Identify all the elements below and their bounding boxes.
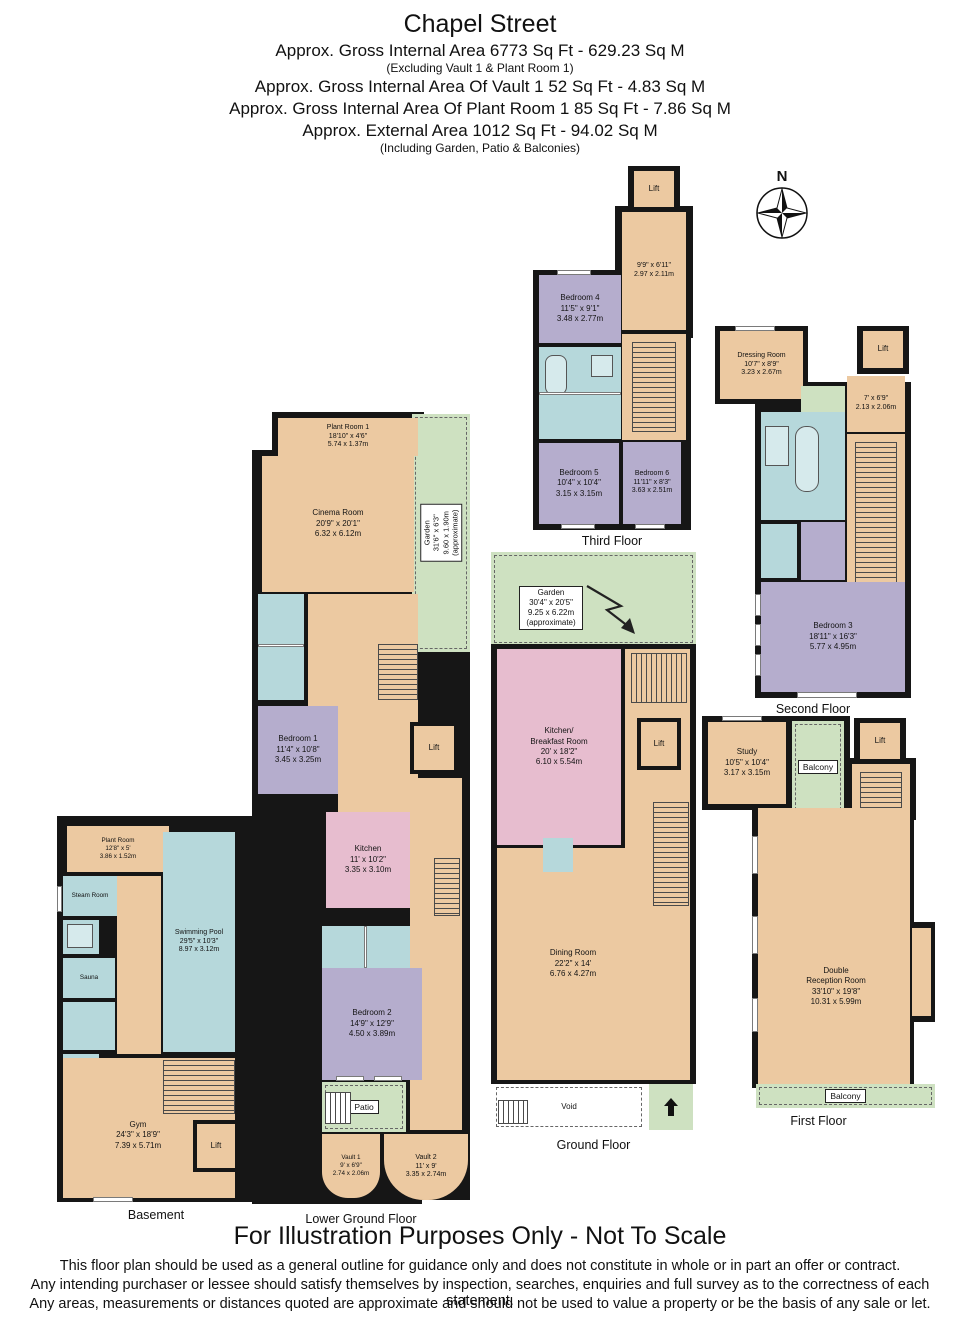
room-hall: 9'9" x 6'11" 2.97 x 2.11m [622,212,686,330]
room-dims-m: 5.77 x 4.95m [809,642,857,652]
staircase [631,653,687,703]
room-dims-ft: 10'5" x 10'4" [724,758,770,768]
floorplan-page: Chapel Street Approx. Gross Internal Are… [0,0,960,1328]
room-wc [63,1002,115,1050]
room-label: Kitchen 11' x 10'2" 3.35 x 3.10m [345,844,391,875]
balcony-tag: Balcony [825,1089,865,1104]
staircase [434,858,460,916]
room-dims-ft: 14'9" x 12'9" [349,1019,395,1029]
room-kitchen-breakfast: Kitchen/ Breakfast Room 20' x 18'2" 6.10… [497,649,621,845]
page-title: Chapel Street [0,10,960,39]
room-bedroom-1: Bedroom 1 11'4" x 10'8" 3.45 x 3.25m [258,706,338,794]
room-name: Swimming Pool [175,929,223,938]
room-label: Vault 2 11' x 9' 3.35 x 2.74m [406,1154,446,1180]
garden-note: (approximate) [450,509,459,557]
room-label: Dressing Room 10'7" x 8'9" 3.23 x 2.67m [737,352,785,378]
garden-note: (approximate) [524,618,578,628]
room-lift: Lift [414,726,454,770]
bay-window-nook [912,928,931,1016]
ground-floor-plan: Garden 30'4" x 20'5" 9.25 x 6.22m (appro… [491,552,696,1134]
wall-divider [364,926,367,968]
room-plant-room: Plant Room 12'8" x 5' 3.86 x 1.52m [67,826,169,872]
patio-tag: Patio [349,1100,378,1115]
room-name: Bedroom 5 [556,468,602,478]
staircase [632,342,676,432]
illustration-notice: For Illustration Purposes Only - Not To … [0,1222,960,1251]
room-label: Cinema Room 20'9" x 20'1" 6.32 x 6.12m [312,508,363,539]
room-dims-ft: 33'10" x 19'8" [776,987,896,997]
room-label: Plant Room 12'8" x 5' 3.86 x 1.52m [100,837,136,861]
vault-area-line: Approx. Gross Internal Area Of Vault 1 5… [0,77,960,97]
room-dims-ft: 10'7" x 8'9" [737,361,785,370]
header: Chapel Street Approx. Gross Internal Are… [0,10,960,155]
bathtub-fixture [545,355,567,395]
staircase [163,1060,235,1114]
room-label: Study 10'5" x 10'4" 3.17 x 3.15m [724,747,770,778]
room-label: Kitchen/ Breakfast Room 20' x 18'2" 6.10… [530,726,587,768]
room-dims-ft: 11' x 10'2" [345,855,391,865]
basement-plan: Plant Room 12'8" x 5' 3.86 x 1.52m Steam… [57,816,255,1202]
window [557,270,591,275]
room-sauna: Sauna [63,958,115,998]
room-cinema: Cinema Room 20'9" x 20'1" 6.32 x 6.12m [262,456,414,592]
room-label: 9'9" x 6'11" 2.97 x 2.11m [634,262,674,280]
room-dims-ft: 10'4" x 10'4" [556,478,602,488]
room-dims-m: 10.31 x 5.99m [776,997,896,1007]
room-dims-m: 2.97 x 2.11m [634,271,674,280]
first-floor-plan: Study 10'5" x 10'4" 3.17 x 3.15m Balcony… [702,716,935,1108]
window [755,594,761,616]
second-floor-plan: Dressing Room 10'7" x 8'9" 3.23 x 2.67m … [715,326,911,698]
room-name: Study [724,747,770,757]
window [752,916,758,954]
room-name: Bedroom 3 [809,621,857,631]
room-dims-ft: 12'8" x 5' [100,845,136,853]
entrance-arrow-icon [664,1098,678,1116]
room-dims-m: 3.48 x 2.77m [557,314,603,324]
first-floor-label: First Floor [702,1114,935,1128]
room-dims-m: 7.39 x 5.71m [83,1141,193,1151]
compass: N [752,168,812,246]
room-label: Bedroom 4 11'5" x 9'1" 3.48 x 2.77m [557,293,603,324]
room-name-line2: Reception Room [776,976,896,986]
room-name: Vault 1 [333,1154,369,1162]
room-bedroom-5: Bedroom 5 10'4" x 10'4" 3.15 x 3.15m [539,443,619,524]
balcony-bottom: Balcony [756,1084,935,1108]
window [735,326,775,331]
garden-label-box: Garden 31'6" x 6'3" 9.60 x 1.90m (approx… [420,504,462,562]
room-name: Dining Room [550,948,596,958]
room-name: Lift [654,739,665,749]
room-name: Sauna [80,974,98,982]
window [336,1076,364,1081]
room-dims-ft: 18'10" x 4'6" [327,433,369,442]
compass-rose-icon [754,185,810,241]
room-wc [543,838,573,872]
external-area-note: (Including Garden, Patio & Balconies) [0,141,960,155]
window [755,624,761,646]
room-dims-ft: 18'11" x 16'3" [809,632,857,642]
shower-fixture [67,924,93,948]
room-name: Bedroom 6 [632,470,672,479]
room-hall: 7' x 6'9" 2.13 x 2.06m [847,376,905,432]
third-floor-plan: Lift 9'9" x 6'11" 2.97 x 2.11m Bedroom 4… [533,166,691,530]
patio-steps [325,1092,351,1124]
room-label: Bedroom 6 11'11" x 8'3" 3.63 x 2.51m [632,470,672,496]
garden-label-box: Garden 30'4" x 20'5" 9.25 x 6.22m (appro… [519,586,583,630]
third-floor-label: Third Floor [533,534,691,548]
room-dims-m: 3.17 x 3.15m [724,768,770,778]
room-name: Bedroom 2 [349,1008,395,1018]
room-dims-m: 3.35 x 2.74m [406,1171,446,1180]
room-label: Bedroom 5 10'4" x 10'4" 3.15 x 3.15m [556,468,602,499]
garden-dims-m: 9.60 x 1.90m [441,509,450,557]
room-label: Vault 1 9' x 6'9" 2.74 x 2.06m [333,1154,369,1178]
room-swimming-pool: Swimming Pool 29'5" x 10'3" 8.97 x 3.12m [163,832,235,1052]
room-name: Lift [875,736,886,746]
gross-internal-area: Approx. Gross Internal Area 6773 Sq Ft -… [0,41,960,61]
window [93,1197,133,1202]
room-dims-m: 5.74 x 1.37m [327,441,369,450]
room-dressing-room: Dressing Room 10'7" x 8'9" 3.23 x 2.67m [720,331,803,399]
room-name: Bedroom 4 [557,293,603,303]
room-dims-ft: 11'5" x 9'1" [557,304,603,314]
garden-dims-ft: 30'4" x 20'5" [524,598,578,608]
room-dining: Dining Room 22'2" x 14' 6.76 x 4.27m [497,848,649,1080]
window [797,692,857,698]
wall-divider [539,392,621,395]
window [755,654,761,676]
lower-ground-floor-plan: Garden 31'6" x 6'3" 9.60 x 1.90m (approx… [252,406,470,1206]
room-dims-m: 2.74 x 2.06m [333,1170,369,1178]
room-name: Lift [649,184,660,194]
room-lift: Lift [634,171,674,207]
room-dims-m: 6.76 x 4.27m [550,969,596,979]
room-dims-m: 3.63 x 2.51m [632,487,672,496]
garden-dims-ft: 31'6" x 6'3" [432,509,441,557]
room-label: Bedroom 3 18'11" x 16'3" 5.77 x 4.95m [809,621,857,652]
room-study: Study 10'5" x 10'4" 3.17 x 3.15m [708,722,786,804]
compass-north-label: N [752,168,812,185]
room-name: Lift [429,743,440,753]
room-name: Gym [83,1120,193,1130]
room-dims-ft: 29'5" x 10'3" [175,938,223,947]
room-label: Bedroom 2 14'9" x 12'9" 4.50 x 3.89m [349,1008,395,1039]
garden-dims-m: 9.25 x 6.22m [524,608,578,618]
room-dims-m: 3.45 x 3.25m [275,755,321,765]
staircase [653,802,689,906]
staircase [855,442,897,584]
garden-strip: Garden 31'6" x 6'3" 9.60 x 1.90m (approx… [412,414,470,652]
room-name: Bedroom 1 [275,734,321,744]
room-name: Dressing Room [737,352,785,361]
room-dims-m: 3.15 x 3.15m [556,489,602,499]
window [57,886,62,912]
void-area: Void [493,1084,645,1130]
room-name: Plant Room [100,837,136,845]
room-corridor [117,876,161,1054]
window [374,1076,402,1081]
second-floor-label: Second Floor [715,702,911,716]
room-lift: Lift [197,1124,235,1168]
room-name: Lift [878,344,889,354]
room-bedroom-4: Bedroom 4 11'5" x 9'1" 3.48 x 2.77m [539,275,621,343]
room-dims-m: 2.13 x 2.06m [856,404,896,413]
room-plant-room-1: Plant Room 1 18'10" x 4'6" 5.74 x 1.37m [278,418,418,456]
room-dims-ft: 11'4" x 10'8" [275,745,321,755]
balcony-top: Balcony [792,721,844,813]
garden-name: Garden [524,588,578,598]
room-landing [801,522,845,580]
room-dims-ft: 20' x 18'2" [530,747,587,757]
void-label: Void [561,1102,577,1112]
room-dims-m: 8.97 x 3.12m [175,946,223,955]
room-name-line1: Kitchen/ [530,726,587,736]
room-label: Swimming Pool 29'5" x 10'3" 8.97 x 3.12m [175,929,223,955]
shower-fixture [591,355,613,377]
balcony-tag: Balcony [798,760,838,775]
room-kitchen: Kitchen 11' x 10'2" 3.35 x 3.10m [326,812,410,908]
patio: Patio [322,1082,406,1132]
room-name: Vault 2 [406,1154,446,1163]
room-name: Kitchen [345,844,391,854]
room-name: Steam Room [72,892,109,900]
gross-internal-note: (Excluding Vault 1 & Plant Room 1) [0,61,960,75]
room-lift: Lift [860,723,900,759]
basement-label: Basement [57,1208,255,1222]
room-dims-ft: 22'2" x 14' [550,959,596,969]
room-bedroom-3: Bedroom 3 18'11" x 16'3" 5.77 x 4.95m [761,582,905,692]
room-dims-m: 3.86 x 1.52m [100,853,136,861]
room-dims-ft: 9' x 6'9" [333,1162,369,1170]
disclaimer-line-1: This floor plan should be used as a gene… [0,1258,960,1274]
room-label: 7' x 6'9" 2.13 x 2.06m [856,395,896,413]
room-bathroom [322,926,410,968]
room-dims-m: 4.50 x 3.89m [349,1029,395,1039]
room-name: Plant Room 1 [327,424,369,433]
room-name: Cinema Room [312,508,363,518]
room-label: Bedroom 1 11'4" x 10'8" 3.45 x 3.25m [275,734,321,765]
window [722,716,762,721]
room-dims-m: 6.32 x 6.12m [312,529,363,539]
room-vault-1: Vault 1 9' x 6'9" 2.74 x 2.06m [322,1134,380,1198]
bathtub-fixture [795,426,819,492]
room-bedroom-2: Bedroom 2 14'9" x 12'9" 4.50 x 3.89m [322,968,422,1080]
garden-name: Garden [422,509,431,557]
ground-floor-label: Ground Floor [491,1138,696,1152]
room-label: Double Reception Room 33'10" x 19'8" 10.… [776,966,896,1008]
lightwell-balcony [801,386,845,412]
window [635,524,665,529]
external-area-line: Approx. External Area 1012 Sq Ft - 94.02… [0,121,960,141]
room-double-reception: Double Reception Room 33'10" x 19'8" 10.… [758,808,910,1084]
room-name: Lift [211,1141,222,1151]
room-dims-m: 3.23 x 2.67m [737,369,785,378]
room-steam-room: Steam Room [63,876,117,916]
room-hall [338,702,418,826]
room-dims-ft: 11'11" x 8'3" [632,479,672,488]
staircase [378,644,418,700]
garden-continues-arrow-icon [585,584,643,642]
room-name-line2: Breakfast Room [530,737,587,747]
entrance [649,1084,693,1130]
plant-area-line: Approx. Gross Internal Area Of Plant Roo… [0,99,960,119]
room-dims-ft: 9'9" x 6'11" [634,262,674,271]
wall-divider [258,644,304,647]
shower-fixture [765,426,789,466]
room-bathroom [761,412,845,520]
window [561,524,595,529]
room-dims-m: 6.10 x 5.54m [530,757,587,767]
room-dims-ft: 11' x 9' [406,1163,446,1172]
room-name-line1: Double [776,966,896,976]
room-bathrooms [258,594,304,700]
entry-steps [498,1100,528,1124]
room-lift: Lift [641,722,677,766]
window [752,998,758,1032]
room-label: Gym 24'3" x 18'9" 7.39 x 5.71m [83,1120,193,1151]
room-label: Dining Room 22'2" x 14' 6.76 x 4.27m [550,948,596,979]
room-shower [63,920,99,954]
disclaimer-line-3: Any areas, measurements or distances quo… [0,1296,960,1312]
room-dims-m: 3.35 x 3.10m [345,865,391,875]
room-dims-ft: 7' x 6'9" [856,395,896,404]
room-label: Plant Room 1 18'10" x 4'6" 5.74 x 1.37m [327,424,369,450]
room-bedroom-6: Bedroom 6 11'11" x 8'3" 3.63 x 2.51m [623,442,681,524]
room-dims-ft: 24'3" x 18'9" [83,1130,193,1140]
room-wc [761,524,797,578]
room-dims-ft: 20'9" x 20'1" [312,519,363,529]
window [752,836,758,874]
room-lift: Lift [863,331,903,368]
